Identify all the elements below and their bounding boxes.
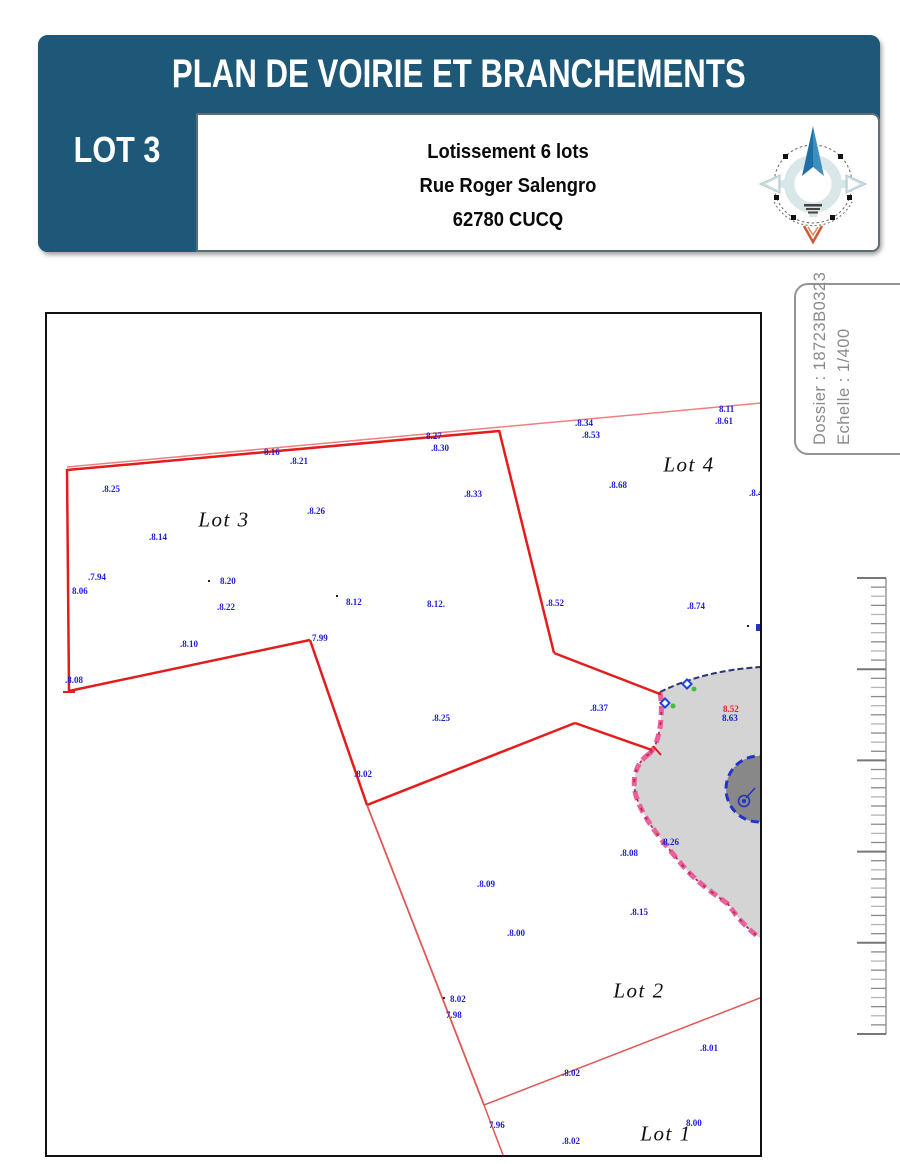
elevation-label: .8.52	[546, 599, 564, 608]
lot-label: Lot 2	[613, 979, 664, 1004]
green-marker-icon	[671, 704, 676, 709]
elevation-label: 8.12	[346, 598, 362, 607]
elevation-label: .8.02	[562, 1069, 580, 1078]
elevation-label: 8.63	[722, 714, 738, 723]
survey-point	[336, 595, 338, 597]
scale-ref: Echelle : 1/400	[835, 293, 854, 445]
parcel-boundary-line	[575, 723, 652, 750]
elevation-label: 8.16	[264, 448, 280, 457]
green-marker-icon	[692, 687, 697, 692]
ring-bump	[838, 180, 846, 188]
parcel-boundary-line	[367, 805, 484, 1105]
plan-drawing	[47, 314, 760, 1155]
lot-label: Lot 3	[198, 508, 249, 533]
elevation-label: 8.06	[72, 587, 88, 596]
elevation-label: .8.30	[431, 444, 449, 453]
plan-canvas: 8.11.8.61.8.34.8.538.27.8.308.16.8.21.8.…	[45, 312, 762, 1157]
elevation-label: 8.02	[450, 995, 466, 1004]
address-block: Lotissement 6 lots Rue Roger Salengro 62…	[223, 135, 793, 237]
survey-point	[208, 580, 210, 582]
elevation-label: .8.08	[65, 676, 83, 685]
streetlight-center	[742, 799, 746, 803]
elevation-label: .8.22	[217, 603, 235, 612]
elevation-label: .8.09	[477, 880, 495, 889]
elevation-label: .8.15	[630, 908, 648, 917]
ring-bump	[780, 180, 788, 188]
lot-panel: LOT 3	[38, 113, 196, 252]
title-block: PLAN DE VOIRIE ET BRANCHEMENTS LOT 3 Lot…	[38, 35, 880, 252]
elevation-label: .8.00	[507, 929, 525, 938]
address-panel: Lotissement 6 lots Rue Roger Salengro 62…	[196, 113, 880, 252]
elevation-label: .8.26	[661, 838, 679, 847]
elevation-label: .8.37	[590, 704, 608, 713]
parcel-boundary-line	[67, 403, 760, 467]
address-line: Lotissement 6 lots	[223, 135, 793, 169]
scale-ruler	[852, 576, 890, 1040]
elevation-label: .8.33	[464, 490, 482, 499]
lot-label: Lot 1	[640, 1122, 691, 1147]
elevation-label: 8.20	[220, 577, 236, 586]
elevation-label: .8.25	[102, 485, 120, 494]
elevation-label: .8.01	[700, 1044, 718, 1053]
elevation-label: .8.34	[575, 419, 593, 428]
elevation-label: 8.11	[719, 405, 734, 414]
parcel-boundary-line	[310, 640, 367, 805]
parcel-boundary-line	[499, 430, 554, 653]
elevation-label: .8.14	[149, 533, 167, 542]
elevation-label: 7.99	[312, 634, 328, 643]
clipped-marker	[756, 624, 760, 631]
parcel-boundary-line	[67, 469, 69, 691]
dossier-ref: Dossier : 18723B0323	[811, 293, 830, 445]
elevation-label: .8.02	[562, 1137, 580, 1146]
elevation-label: .8.08	[620, 849, 638, 858]
lot-label: Lot 4	[663, 453, 714, 478]
elevation-label: .8.02	[354, 770, 372, 779]
elevation-label: 8.12.	[427, 600, 445, 609]
dossier-box: Dossier : 18723B0323 Echelle : 1/400	[794, 283, 900, 455]
elevation-label: .8.68	[609, 481, 627, 490]
elevation-label: .8.26	[307, 507, 325, 516]
elevation-label: .8.21	[290, 457, 308, 466]
survey-point	[443, 997, 445, 999]
elevation-label: .8.46	[749, 489, 762, 498]
elevation-label: .8.25	[432, 714, 450, 723]
elevation-label: .8.61	[715, 417, 733, 426]
lot-number: LOT 3	[50, 129, 184, 171]
elevation-label: .8.10	[180, 640, 198, 649]
compass-hub	[795, 166, 832, 203]
elevation-label: 7.96	[489, 1121, 505, 1130]
elevation-label: .8.53	[582, 431, 600, 440]
survey-point	[747, 625, 749, 627]
parcel-boundary-line	[554, 653, 660, 694]
elevation-label: .8.74	[687, 602, 705, 611]
parcel-boundary-line	[484, 1105, 503, 1155]
page-title: PLAN DE VOIRIE ET BRANCHEMENTS	[172, 52, 746, 97]
parcel-boundary-line	[484, 998, 760, 1105]
elevation-label: 7.98	[446, 1011, 462, 1020]
title-band: PLAN DE VOIRIE ET BRANCHEMENTS	[38, 35, 880, 113]
elevation-label: 8.27	[426, 432, 442, 441]
page: { "header": { "title": "PLAN DE VOIRIE E…	[0, 0, 900, 1164]
parcel-boundary-line	[367, 723, 575, 805]
elevation-label: .7.94	[88, 573, 106, 582]
compass-rose-icon	[754, 120, 872, 248]
address-line: Rue Roger Salengro	[223, 169, 793, 203]
address-line: 62780 CUCQ	[223, 203, 793, 237]
